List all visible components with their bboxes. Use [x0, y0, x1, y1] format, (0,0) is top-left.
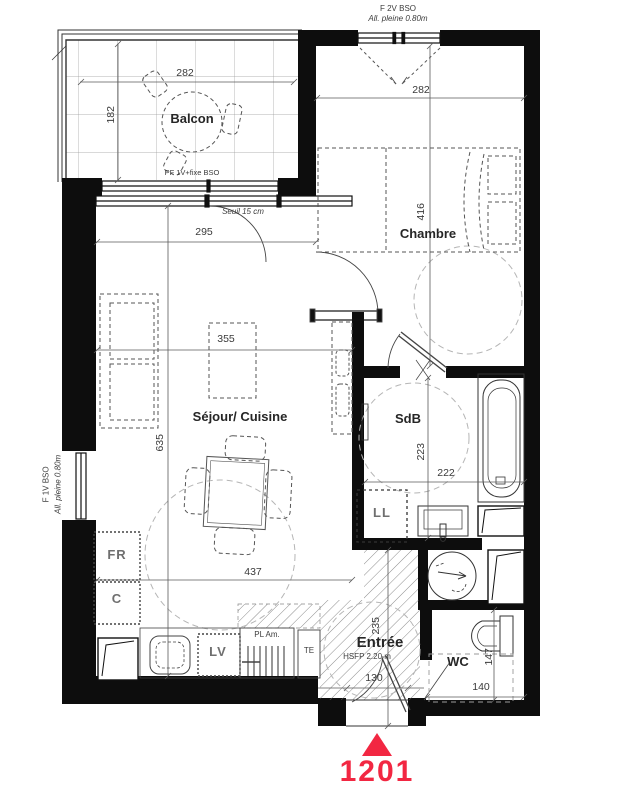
unit-number: 1201 [307, 755, 447, 788]
dim-entree-depth: 235 [371, 604, 383, 648]
dim-balcon-width: 282 [163, 68, 207, 80]
floor-plan-drawing [0, 0, 618, 800]
room-label-chambre: Chambre [385, 227, 471, 241]
appliance-cooktop: C [94, 592, 140, 606]
balcony-structure [52, 30, 302, 182]
room-label-balcon: Balcon [150, 112, 234, 126]
hsfp-note: HSFP 2.20 m [325, 653, 409, 662]
dim-wc-depth: 147 [484, 635, 496, 679]
dim-wc-width: 140 [459, 682, 503, 694]
left-window-sublabel: All. pleine 0.80m [55, 424, 64, 544]
room-label-sejour: Séjour/ Cuisine [158, 410, 322, 424]
dim-sejour-355: 355 [204, 334, 248, 346]
left-window-label: F 1V BSO [43, 424, 52, 544]
dim-balcon-depth: 182 [106, 93, 118, 137]
dim-sejour-295: 295 [182, 227, 226, 239]
dim-sejour-635: 635 [155, 421, 167, 465]
dim-chambre-depth: 416 [416, 190, 428, 234]
dim-entree-width: 130 [352, 673, 396, 685]
appliance-fridge: FR [94, 548, 140, 562]
appliance-elec-panel: TE [297, 647, 321, 656]
floor-plan: F 2V BSO All. pleine 0.80m Balcon 282 18… [0, 0, 618, 800]
dim-sdb-width: 222 [424, 468, 468, 480]
dim-chambre-width: 282 [399, 85, 443, 97]
room-label-sdb: SdB [376, 412, 440, 426]
seuil-note: Seuil 15 cm [200, 208, 286, 217]
appliance-washer: LL [359, 506, 405, 520]
dim-sejour-437: 437 [231, 567, 275, 579]
room-label-wc: WC [426, 655, 490, 669]
appliance-closet: PL Am. [238, 631, 296, 640]
top-window-sublabel: All. pleine 0.80m [338, 15, 458, 24]
appliance-dishwasher: LV [196, 645, 240, 659]
balcony-window-label: PF 1V+fixe BSO [130, 169, 254, 177]
entrance-marker-triangle [362, 733, 392, 756]
top-window-label: F 2V BSO [338, 5, 458, 14]
